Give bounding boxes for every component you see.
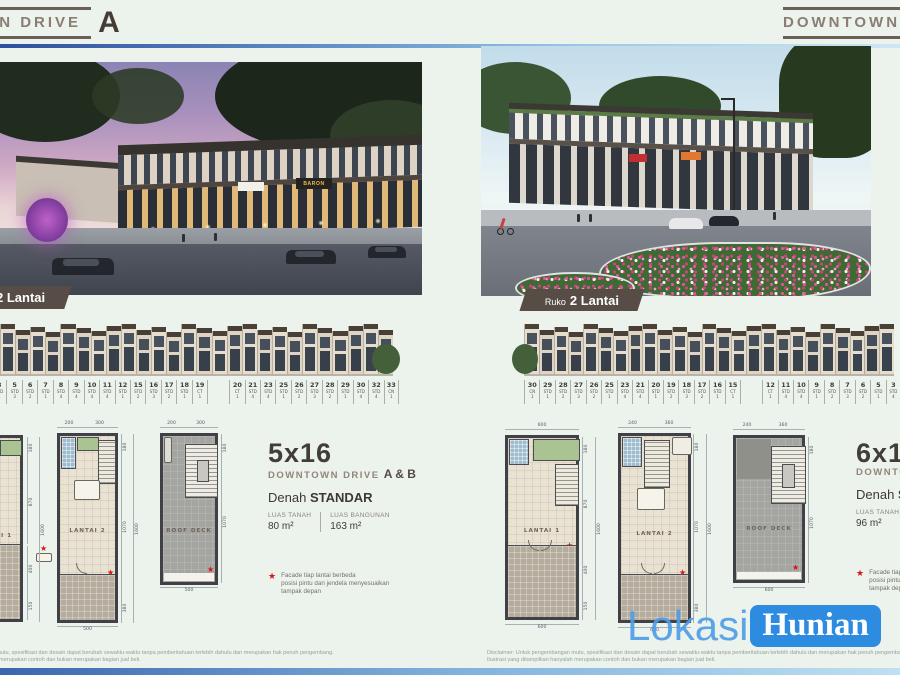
plan-label: ROOF DECK — [163, 528, 215, 534]
header-left-title: DOWNTOWN DRIVE — [0, 14, 81, 31]
elevation-facade — [348, 326, 363, 374]
unit-number: 30 — [354, 381, 368, 389]
unit-cell: 11STD4 — [99, 380, 114, 404]
dim-horizontal: 600 — [505, 624, 579, 631]
dim-horizontal: 300 — [183, 421, 218, 428]
info-block-left: 5x16 DOWNTOWN DRIVE A & B Denah STANDAR … — [268, 440, 436, 532]
facade-parapet — [92, 331, 106, 336]
facade-window — [616, 340, 626, 351]
facade-parapet — [364, 324, 378, 329]
unit-number: 28 — [556, 381, 570, 389]
elevation-facade — [257, 330, 272, 374]
badge-prefix: Ruko — [545, 297, 566, 307]
facade-parapet — [658, 330, 672, 335]
staircase — [644, 440, 670, 488]
facade-storefront — [18, 353, 28, 371]
unit-type: STD4 — [633, 390, 647, 399]
area-row: LUAS TANAH 96 m² — [856, 509, 900, 529]
door-arc — [76, 563, 87, 574]
unit-number: 11 — [100, 381, 114, 389]
facade-parapet — [122, 324, 136, 329]
facade-parapet — [318, 328, 332, 333]
header-right: DOWNTOWN — [783, 7, 900, 39]
facade-window — [260, 339, 270, 350]
unit-cell: 8STD2 — [824, 380, 839, 404]
facade-storefront — [749, 349, 759, 371]
facade-window — [139, 339, 149, 350]
facade-storefront — [33, 350, 43, 371]
dim-vertical: 1600 — [706, 434, 714, 623]
pedestrian — [182, 234, 185, 242]
unit-number: 29 — [540, 381, 554, 389]
badge-title: 2 Lantai — [0, 290, 45, 305]
storefront-sign-white — [238, 182, 264, 191]
elevation-facade — [568, 332, 583, 374]
facade-parapet — [16, 330, 30, 335]
facade-parapet — [643, 324, 657, 329]
facade-window — [230, 335, 240, 346]
unit-cell: 11STD4 — [778, 380, 793, 404]
elevation-facade — [227, 326, 242, 374]
elevation-facade — [317, 328, 332, 374]
unit-type: STD3 — [146, 390, 160, 399]
facade-storefront — [124, 347, 134, 371]
facade-window — [749, 335, 759, 346]
unit-cell: 10STD4 — [793, 380, 808, 404]
unit-number: 28 — [323, 381, 337, 389]
watermark-lokasi: Lokasi — [627, 602, 748, 650]
unit-cell: 19CT1 — [192, 380, 207, 404]
facade-window — [305, 333, 315, 344]
car — [52, 258, 114, 275]
unit-type: CT1 — [193, 390, 207, 399]
facade-note-star: ★ — [792, 564, 799, 572]
bathroom — [509, 439, 529, 465]
elevation-facade — [287, 332, 302, 374]
dim-horizontal: 200 — [160, 421, 183, 428]
staircase — [98, 440, 116, 484]
facade-parapet — [555, 327, 569, 332]
unit-number: 32 — [369, 381, 383, 389]
footnote-line: tampak depan — [281, 588, 389, 596]
unit-type: STD1 — [338, 390, 352, 399]
facade-storefront — [542, 353, 552, 371]
bathroom — [61, 437, 76, 469]
unit-number: 26 — [292, 381, 306, 389]
dim-vertical: 1070 — [221, 461, 229, 583]
dim-horizontal: 500 — [57, 626, 118, 633]
facade-window — [882, 333, 892, 344]
unit-number: 33 — [385, 381, 398, 389]
facade-parapet — [333, 331, 347, 336]
facade-parapet — [762, 324, 776, 329]
facade-window — [571, 341, 581, 352]
unit-cell: 21STD4 — [632, 380, 647, 404]
elevation-facade — [332, 331, 347, 374]
facade-storefront — [63, 347, 73, 371]
unit-cell: 9STD1 — [808, 380, 823, 404]
facade-window — [690, 341, 700, 352]
badge-ruko-right-text: Ruko 2 Lantai — [545, 293, 619, 308]
unit-cell: 7STD1 — [37, 380, 52, 404]
unit-type: STD1 — [276, 390, 290, 399]
facade-window — [18, 339, 28, 350]
balcony — [60, 574, 115, 620]
plan-label: LANTAI 1 — [508, 528, 576, 534]
unit-cell: 23STD4 — [260, 380, 275, 404]
pedestrian — [773, 212, 776, 220]
plan-left-lantai1: LANTAI 1 — [0, 435, 23, 622]
elevation-facade — [45, 332, 60, 374]
facade-storefront — [335, 354, 345, 371]
facade-storefront — [734, 354, 744, 371]
elevation-facade — [121, 324, 136, 374]
facade-storefront — [793, 350, 803, 371]
footnote-star-icon: ★ — [856, 569, 864, 593]
elevation-facade — [196, 328, 211, 374]
facade-storefront — [305, 347, 315, 371]
unit-number: 12 — [763, 381, 777, 389]
unit-cell: 15CT1 — [725, 380, 740, 404]
unit-number: 21 — [246, 381, 260, 389]
facade-window — [109, 335, 119, 346]
elevation-facade — [212, 331, 227, 374]
facade-storefront — [199, 351, 209, 371]
facade-parapet — [747, 326, 761, 331]
unit-type: STD1 — [871, 390, 885, 399]
unit-number: 19 — [193, 381, 207, 389]
unit-cell: 5STD3 — [6, 380, 21, 404]
unit-number: 16 — [710, 381, 724, 389]
facade-storefront — [215, 354, 225, 371]
car-windshield — [375, 247, 397, 252]
facade-parapet — [673, 327, 687, 332]
unit-cell: 27STD3 — [306, 380, 321, 404]
unit-cell: 20STD1 — [648, 380, 663, 404]
plan-label: ROOF DECK — [736, 526, 802, 532]
elevation-facade — [598, 328, 613, 374]
facade-parapet — [614, 331, 628, 336]
unit-cell: 21STD4 — [245, 380, 260, 404]
facade-storefront — [154, 350, 164, 371]
unit-cell: 26STD2 — [291, 380, 306, 404]
facade-parapet — [61, 324, 75, 329]
facade-window — [3, 333, 13, 344]
dim-vertical: 1070 — [808, 463, 816, 583]
stair-core — [197, 460, 209, 482]
header-left-block-letter: A — [98, 8, 120, 38]
brochure-page: DOWNTOWN DRIVE A DOWNTOWN BARON — [0, 0, 900, 675]
tree — [92, 68, 184, 124]
facade-parapet — [1, 324, 15, 329]
unit-cell: 16STD1 — [709, 380, 724, 404]
facade-window — [48, 341, 58, 352]
facade-window — [867, 335, 877, 346]
denah-line: Denah STANDAR — [856, 487, 900, 502]
unit-cell: 12STD1 — [115, 380, 130, 404]
unit-number: 15 — [131, 381, 145, 389]
unit-type: STD2 — [695, 390, 709, 399]
facade-storefront — [109, 349, 119, 371]
unit-number: 19 — [664, 381, 678, 389]
unit-cell: 33CN1 — [384, 380, 399, 404]
unit-number: 9 — [809, 381, 823, 389]
unit-type: STD4 — [354, 390, 368, 399]
unit-type: STD4 — [85, 390, 99, 399]
facade-parapet — [46, 332, 60, 337]
elevation-facade — [91, 331, 106, 374]
unit-number: 12 — [116, 381, 130, 389]
unit-number: 3 — [887, 381, 900, 389]
unit-cell: 26STD2 — [586, 380, 601, 404]
garden-patch — [77, 437, 99, 451]
elevation-facade — [30, 327, 45, 374]
front-court — [508, 545, 576, 617]
unit-cell: 16STD3 — [145, 380, 160, 404]
footnote-right: ★ Facade tiap lantai berbeda posisi pint… — [856, 569, 900, 593]
facade-storefront — [351, 349, 361, 371]
unit-cell: 18STD3 — [678, 380, 693, 404]
plan-left-lantai2: LANTAI 2 ★ — [57, 433, 118, 623]
facade-storefront — [290, 355, 300, 371]
building-storefronts — [509, 144, 813, 214]
pedestrian — [577, 214, 580, 222]
car — [709, 216, 739, 226]
dim-horizontal: 240 — [733, 423, 761, 430]
project-name: DOWNTOWN DRIVE — [856, 467, 900, 478]
dim-vertical: 180 — [27, 437, 35, 459]
unit-type: STD4 — [261, 390, 275, 399]
elevation-facade — [613, 331, 628, 374]
unit-number: 30 — [525, 381, 539, 389]
footnote-line: tampak depan — [869, 585, 900, 593]
dim-vertical: 870 — [582, 461, 590, 547]
streetlight-glow — [318, 220, 324, 226]
facade-parapet — [717, 328, 731, 333]
facade-storefront — [245, 347, 255, 371]
furniture — [637, 488, 665, 510]
facade-parapet — [880, 324, 894, 329]
elevation-facade — [761, 324, 776, 374]
facade-parapet — [288, 332, 302, 337]
elevation-facade — [583, 324, 598, 374]
unit-type: STD1 — [710, 390, 724, 399]
elevation-facade — [272, 327, 287, 374]
unit-number: 9 — [69, 381, 83, 389]
bathroom — [622, 437, 642, 467]
divider-rule-bottom — [0, 668, 900, 675]
unit-type: STD3 — [7, 390, 21, 399]
luas-tanah-value: 96 m² — [856, 518, 899, 529]
header-left-rules: DOWNTOWN DRIVE — [0, 7, 91, 39]
facade-parapet — [379, 330, 393, 335]
luas-bangunan-label: LUAS BANGUNAN — [330, 512, 390, 519]
facade-window — [79, 337, 89, 348]
facade-storefront — [79, 351, 89, 371]
unit-strip-gap — [207, 380, 229, 404]
unit-type: STD4 — [618, 390, 632, 399]
unit-cell: 17STD2 — [161, 380, 176, 404]
facade-window — [169, 341, 179, 352]
unit-type: STD4 — [887, 390, 900, 399]
car-white — [669, 218, 703, 229]
unit-type: STD2 — [825, 390, 839, 399]
dim-vertical: 180 — [693, 434, 701, 460]
badge-ruko-right: Ruko 2 Lantai — [519, 289, 644, 311]
unit-type: STD1 — [540, 390, 554, 399]
elevation-facade — [879, 324, 894, 374]
unit-cell: 28STD2 — [322, 380, 337, 404]
header-right-rules: DOWNTOWN — [783, 7, 900, 39]
cyclist-wheel — [507, 228, 514, 235]
facade-window — [675, 336, 685, 347]
unit-cell: 32STD4 — [368, 380, 383, 404]
facade-window — [124, 333, 134, 344]
front-edge — [164, 573, 214, 581]
facade-storefront — [260, 353, 270, 371]
facade-parapet — [688, 332, 702, 337]
unit-number: 5 — [871, 381, 885, 389]
facade-window — [351, 335, 361, 346]
unit-type: STD2 — [23, 390, 37, 399]
facade-storefront — [808, 355, 818, 371]
unit-type: STD4 — [100, 390, 114, 399]
unit-type: STD2 — [131, 390, 145, 399]
plan-label: LANTAI 2 — [621, 531, 688, 537]
disclaimer-line: Disclaimer: Untuk pengembangan mutu, spe… — [0, 650, 472, 657]
unit-cell: 30CN1 — [524, 380, 539, 404]
unit-cell: 6STD2 — [855, 380, 870, 404]
elevation-facade — [302, 324, 317, 374]
facade-storefront — [882, 347, 892, 371]
footnote-line: posisi pintu dan jendela menyesuaikan — [869, 577, 900, 585]
facade-storefront — [660, 353, 670, 371]
facade-window — [838, 337, 848, 348]
unit-cell: 28STD2 — [555, 380, 570, 404]
unit-type: STD1 — [649, 390, 663, 399]
unit-type: CT1 — [230, 390, 244, 399]
unit-number: 20 — [649, 381, 663, 389]
unit-number: 8 — [54, 381, 68, 389]
footnote-line: Facade tiap lantai berbeda — [869, 569, 900, 577]
facade-parapet — [851, 331, 865, 336]
elevation-facade — [151, 327, 166, 374]
dim-horizontal: 600 — [733, 587, 805, 594]
facade-window — [660, 339, 670, 350]
cyclist-wheel — [497, 228, 504, 235]
building-row — [509, 103, 813, 214]
luas-tanah: LUAS TANAH 80 m² — [268, 512, 320, 532]
unit-number: 21 — [633, 381, 647, 389]
disclaimer-line: Ilustrasi yang ditampilkan hanyalah meru… — [487, 657, 900, 664]
elevation-facade — [106, 326, 121, 374]
facade-window — [527, 333, 537, 344]
elevation-facade — [539, 330, 554, 374]
elevation-facade — [835, 328, 850, 374]
luas-tanah-value: 80 m² — [268, 521, 311, 532]
dim-vertical: 1600 — [133, 434, 141, 623]
elevation-facade — [864, 326, 879, 374]
footnote-line: posisi pintu dan jendela menyesuaikan — [281, 580, 389, 588]
unit-type: STD3 — [307, 390, 321, 399]
front-court — [0, 544, 20, 619]
unit-type: STD2 — [587, 390, 601, 399]
unit-type: CN1 — [385, 390, 398, 399]
unit-cell: 19STD2 — [663, 380, 678, 404]
facade-window — [853, 340, 863, 351]
facade-window — [320, 337, 330, 348]
facade-window — [542, 339, 552, 350]
facade-window — [793, 336, 803, 347]
footnote-star-icon: ★ — [268, 572, 276, 596]
facade-storefront — [275, 350, 285, 371]
facade-parapet — [273, 327, 287, 332]
unit-cell: 9STD4 — [68, 380, 83, 404]
unit-cell: 17STD2 — [694, 380, 709, 404]
unit-cell: 25STD1 — [275, 380, 290, 404]
strip-tree — [372, 344, 400, 374]
footnote-line: Facade tiap lantai berbeda — [281, 572, 389, 580]
facade-window — [705, 333, 715, 344]
unit-number: 18 — [177, 381, 191, 389]
facade-parapet — [167, 332, 181, 337]
facade-window — [33, 336, 43, 347]
denah-prefix: Denah — [268, 490, 306, 505]
disclaimer-line: Disclaimer: Untuk pengembangan mutu, spe… — [487, 650, 900, 657]
facade-storefront — [94, 354, 104, 371]
facade-window — [586, 333, 596, 344]
unit-type: STD1 — [38, 390, 52, 399]
plan-left-roofdeck: ROOF DECK ★ — [160, 433, 218, 585]
facade-window — [601, 337, 611, 348]
garden-patch — [533, 439, 580, 461]
unit-number: 11 — [779, 381, 793, 389]
facade-parapet — [303, 324, 317, 329]
storefront-sign-red — [629, 154, 647, 162]
unit-cell: 20CT1 — [229, 380, 244, 404]
plan-right-lantai1: LANTAI 1 ★ — [505, 435, 579, 620]
car — [286, 250, 336, 264]
badge-ruko-left: Ruko 2 Lantai — [0, 286, 72, 309]
unit-number: 8 — [825, 381, 839, 389]
facade-parapet — [349, 326, 363, 331]
unit-number: 18 — [679, 381, 693, 389]
elevation-facade — [60, 324, 75, 374]
disclaimer-left: Disclaimer: Untuk pengembangan mutu, spe… — [0, 650, 472, 664]
dim-vertical: 150 — [27, 592, 35, 620]
unit-cell: 10STD4 — [84, 380, 99, 404]
info-block-right: 6x16 DOWNTOWN DRIVE Denah STANDAR LUAS T… — [856, 440, 900, 529]
unit-type: STD1 — [116, 390, 130, 399]
unit-number: 6 — [23, 381, 37, 389]
badge-title: 2 Lantai — [570, 293, 619, 308]
facade-window — [366, 333, 376, 344]
luas-tanah: LUAS TANAH 96 m² — [856, 509, 900, 529]
flower-bed — [599, 242, 871, 296]
unit-number: 6 — [856, 381, 870, 389]
facade-storefront — [867, 349, 877, 371]
elevation-facade — [820, 324, 835, 374]
facade-storefront — [320, 351, 330, 371]
facade-parapet — [777, 330, 791, 335]
unit-type: CT1 — [726, 390, 740, 399]
facade-parapet — [258, 330, 272, 335]
facade-parapet — [584, 324, 598, 329]
facade-parapet — [806, 332, 820, 337]
project-title: DOWNTOWN DRIVE — [856, 467, 900, 478]
luas-tanah-label: LUAS TANAH — [268, 512, 311, 519]
luas-tanah-label: LUAS TANAH — [856, 509, 899, 516]
